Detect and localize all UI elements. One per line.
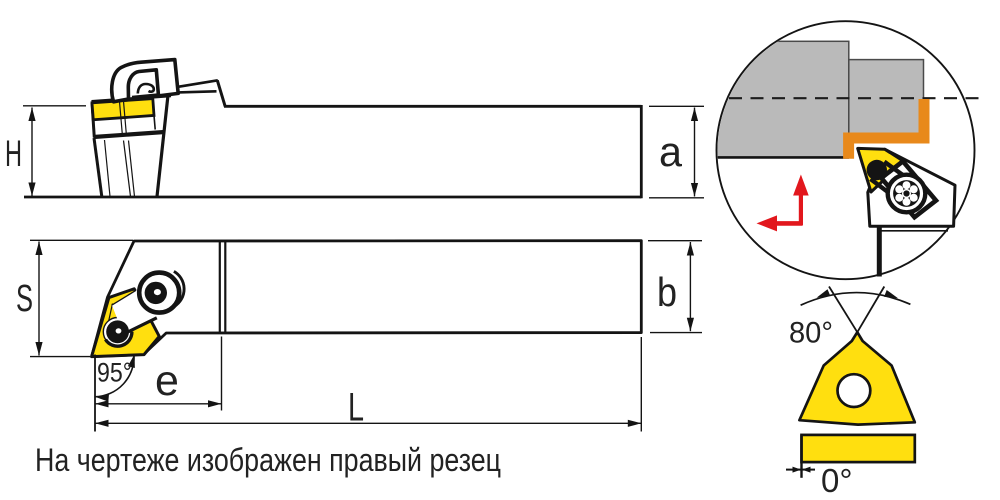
svg-text:H: H xyxy=(5,133,22,174)
svg-text:L: L xyxy=(348,386,364,430)
svg-text:0°: 0° xyxy=(821,462,853,499)
svg-text:a: a xyxy=(659,128,683,175)
svg-text:b: b xyxy=(657,269,677,315)
svg-text:S: S xyxy=(16,278,33,320)
svg-text:На чертеже изображен правый ре: На чертеже изображен правый резец xyxy=(35,442,501,478)
svg-text:95°: 95° xyxy=(97,358,132,388)
svg-text:80°: 80° xyxy=(789,317,833,350)
svg-text:e: e xyxy=(155,357,179,405)
